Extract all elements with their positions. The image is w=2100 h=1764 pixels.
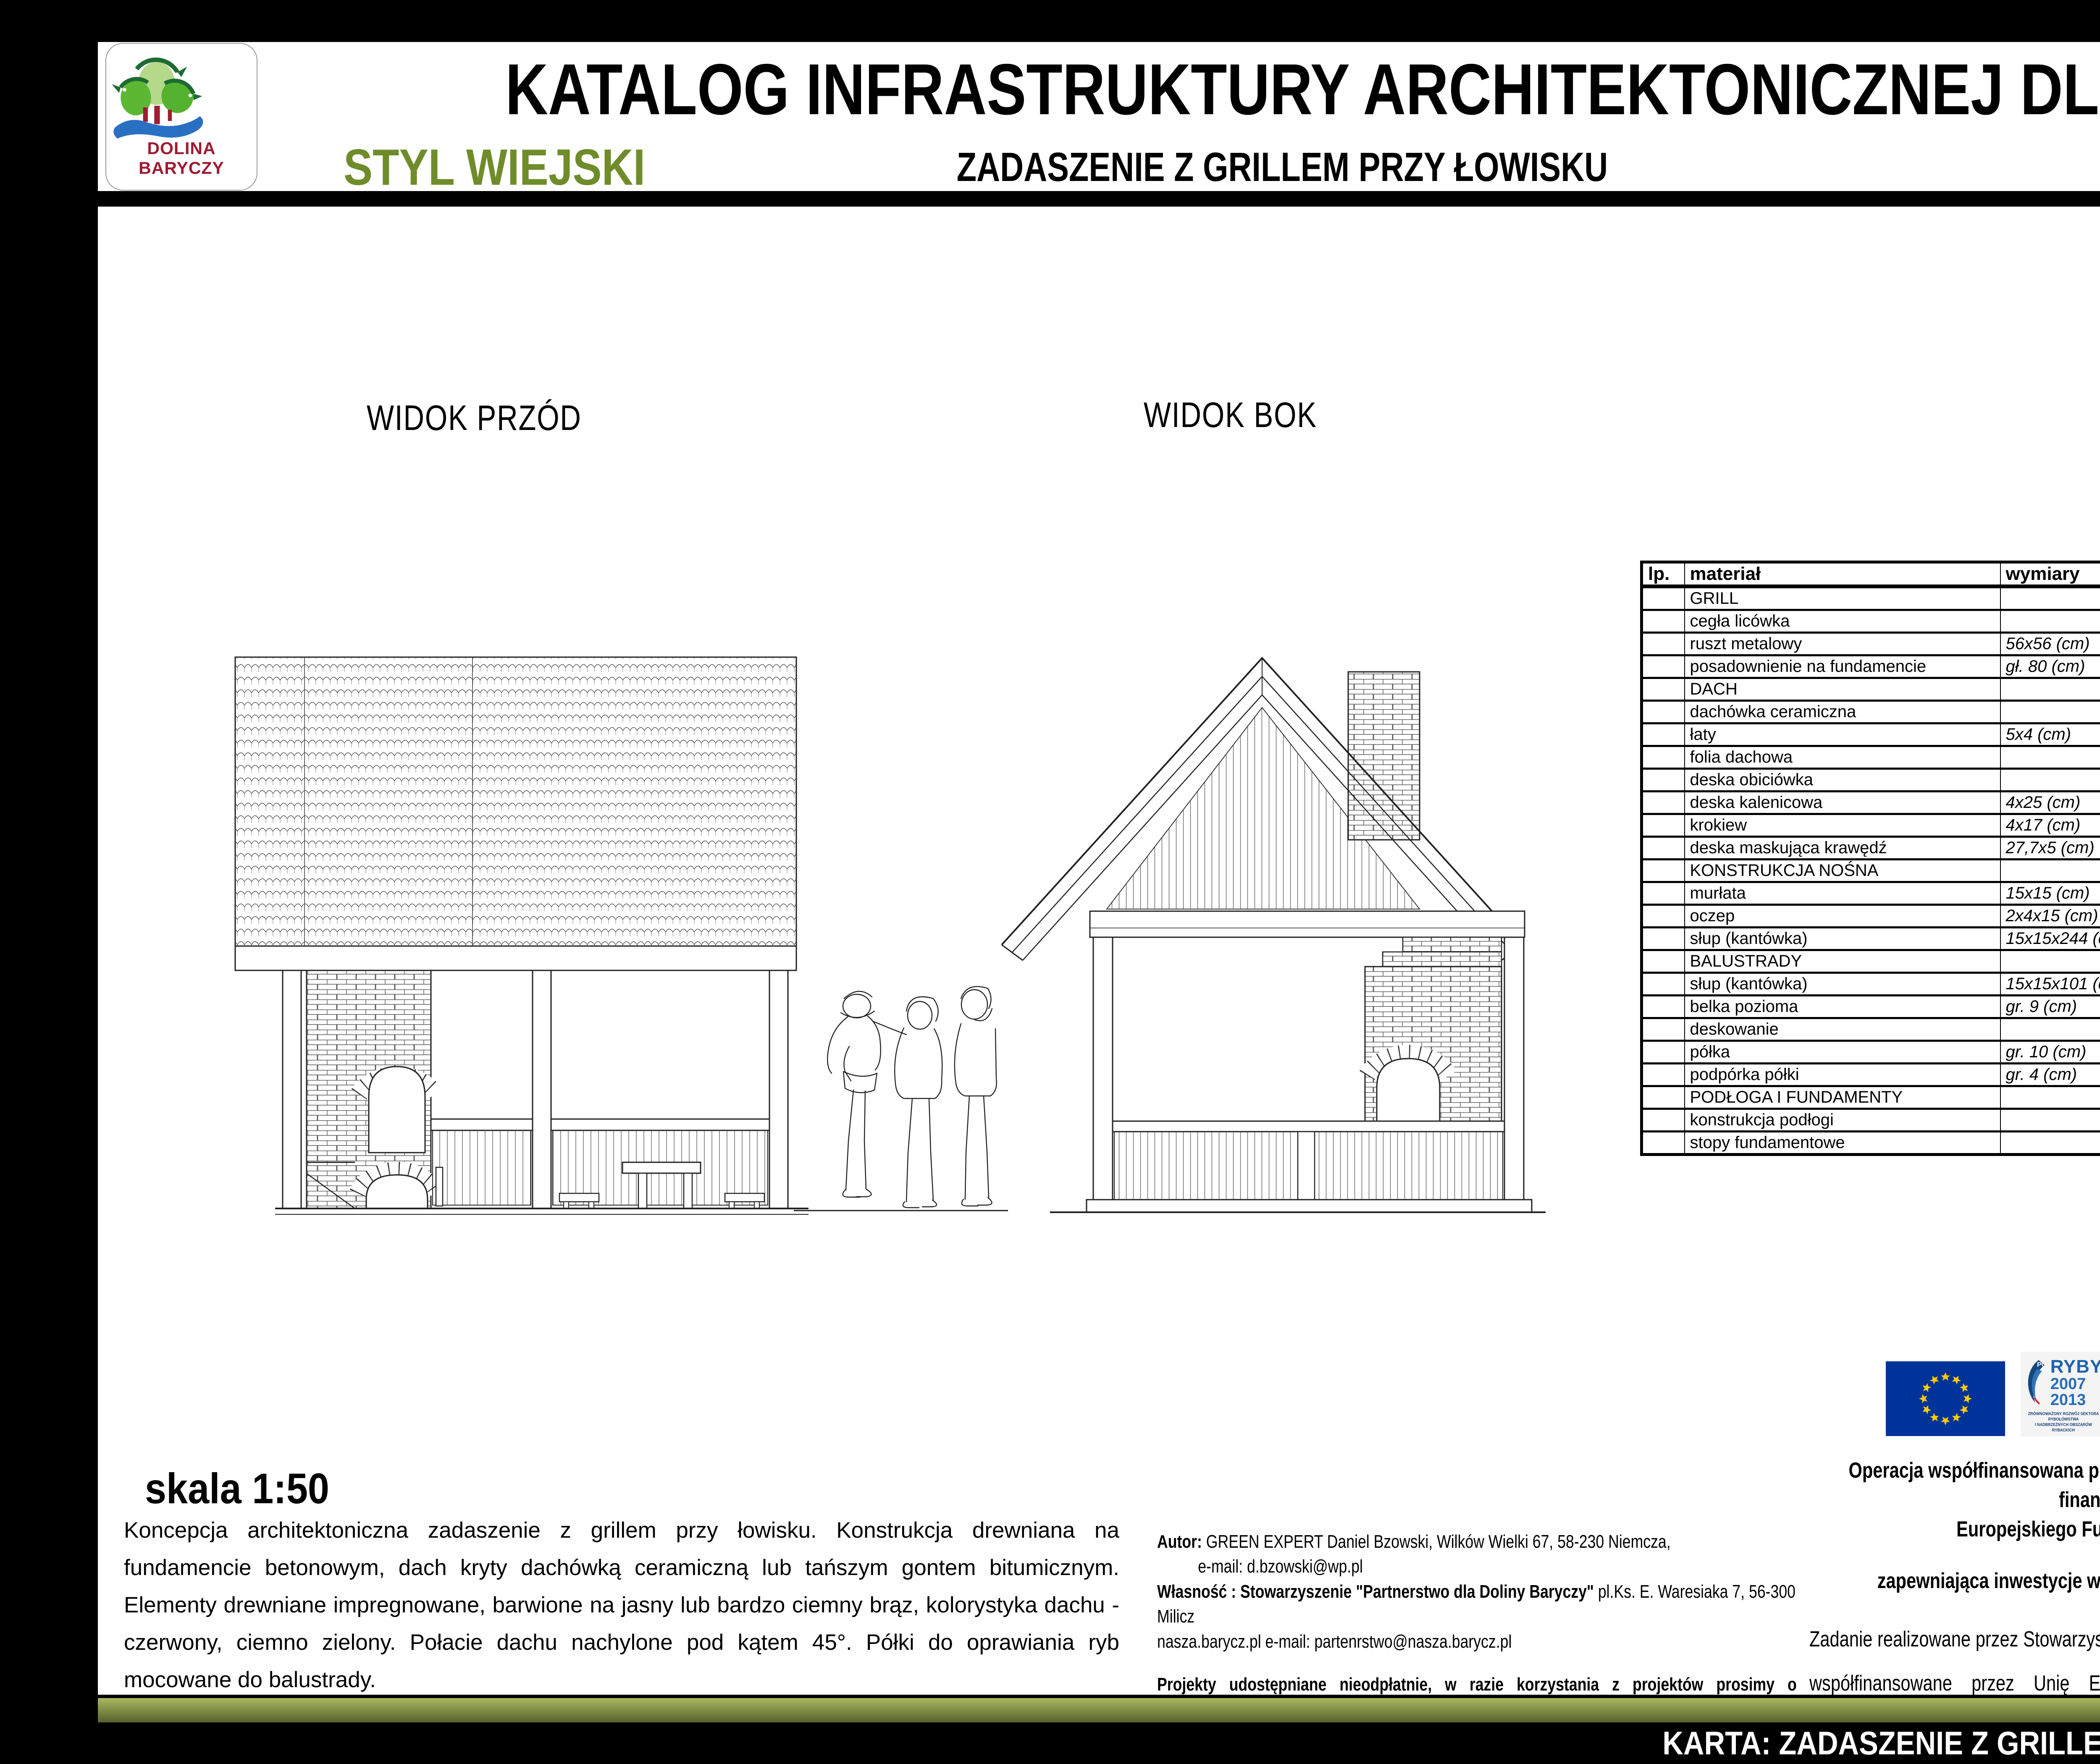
cell-material: deskowanie — [1685, 1018, 2000, 1041]
cell-material: BALUSTRADY — [1685, 950, 2000, 973]
cell-lp — [1642, 746, 1685, 769]
po-ryby-caption: ZRÓWNOWAŻONY ROZWÓJ SEKTORA RYBOŁÓWSTWA … — [2025, 1411, 2100, 1433]
funding-heading1: Operacja współfinansowana przez Unię Eur… — [1809, 1456, 2100, 1515]
scale-note: skala 1:50 — [145, 1464, 350, 1513]
table-row: podpórka półkigr. 4 (cm)7 szt.drewno imp… — [1642, 1064, 2100, 1086]
cell-material: posadownienie na fundamencie — [1685, 655, 2000, 678]
cell-lp — [1642, 610, 1685, 633]
materials-table-body: GRILLcegła licówka2,47 m³ruszt metalowy5… — [1642, 587, 2100, 1155]
table-row: półkagr. 10 (cm)2,91 mbdrewno impregnowa… — [1642, 1041, 2100, 1064]
table-row: folia dachowa27,7 m² — [1642, 746, 2100, 769]
cell-lp — [1642, 633, 1685, 655]
table-section-row: GRILL — [1642, 587, 2100, 610]
cell-material: dachówka ceramiczna — [1685, 701, 2000, 723]
table-section-row: DACH — [1642, 678, 2100, 701]
people-sketch — [794, 966, 1008, 1218]
table-header-cell: wymiary — [2000, 562, 2100, 587]
side-elevation-drawing — [987, 649, 1546, 1218]
table-row: słup (kantówka)15x15x244 (cm)5 szt.drewn… — [1642, 928, 2100, 950]
cell-dims: 4x17 (cm) — [2000, 814, 2100, 837]
cell-dims: 4x25 (cm) — [2000, 792, 2100, 814]
table-row: krokiew4x17 (cm)18 szt.drewno impregnowa… — [1642, 814, 2100, 837]
front-view-label: WIDOK PRZÓD — [367, 398, 629, 438]
cell-material: belka pozioma — [1685, 996, 2000, 1018]
cell-dims — [2000, 701, 2100, 723]
style-label: STYL WIEJSKI — [344, 138, 698, 197]
cell-lp — [1642, 996, 1685, 1018]
cell-dims: 5x4 (cm) — [2000, 723, 2100, 746]
front-elevation-drawing — [202, 647, 811, 1218]
cell-dims: gr. 4 (cm) — [2000, 1064, 2100, 1086]
cell-material: PODŁOGA I FUNDAMENTY — [1685, 1086, 2000, 1109]
page-subtitle: ZADASZENIE Z GRILLEM PRZY ŁOWISKU — [652, 144, 1912, 191]
table-row: belka poziomagr. 9 (cm)13,32 mbdrewno im… — [1642, 996, 2100, 1018]
cell-lp — [1642, 928, 1685, 950]
table-section-row: KONSTRUKCJA NOŚNA — [1642, 860, 2100, 882]
table-row: konstrukcja podłogi11,31 m² — [1642, 1109, 2100, 1132]
olive-divider-bar — [98, 1696, 2100, 1722]
footer-card-label: KARTA: ZADASZENIE Z GRILLEM PRZY ŁOWISKU… — [1562, 1724, 2100, 1762]
cell-dims: 2x4x15 (cm) — [2000, 905, 2100, 928]
cell-lp — [1642, 701, 1685, 723]
cell-lp — [1642, 950, 1685, 973]
materials-table: lp.materiałwymiaryilośćuwagi GRILLcegła … — [1640, 561, 2100, 1156]
cell-dims — [2000, 1109, 2100, 1132]
catalog-card-page: DOLINA BARYCZY KATALOG INFRASTRUKTURY AR… — [0, 0, 2100, 1764]
cell-lp — [1642, 1086, 1685, 1109]
cell-material: deska obiciówka — [1685, 769, 2000, 792]
table-row: deska kalenicowa4x25 (cm)1 szt.drewno im… — [1642, 792, 2100, 814]
cell-material: oczep — [1685, 905, 2000, 928]
po-ryby-fish-icon: PO — [2024, 1358, 2050, 1408]
cell-dims — [2000, 950, 2100, 973]
logo-caption: DOLINA BARYCZY — [106, 139, 257, 178]
cell-material: deska kalenicowa — [1685, 792, 2000, 814]
table-row: posadownienie na fundamenciegł. 80 (cm)1… — [1642, 655, 2100, 678]
description-line3: - zgłoszenie w urzędzie — [124, 1736, 1119, 1764]
cell-lp — [1642, 837, 1685, 860]
description-paragraph: Koncepcja architektoniczna zadaszenie z … — [124, 1512, 1119, 1698]
cell-material: łaty — [1685, 723, 2000, 746]
table-row: cegła licówka2,47 m³ — [1642, 610, 2100, 633]
author-line1: Autor: GREEN EXPERT Daniel Bzowski, Wilk… — [1157, 1529, 1797, 1554]
cell-dims: gr. 10 (cm) — [2000, 1041, 2100, 1064]
cell-material: ruszt metalowy — [1685, 633, 2000, 655]
cell-material: deska maskująca krawędź — [1685, 837, 2000, 860]
dolina-baryczy-logo: DOLINA BARYCZY — [105, 43, 257, 191]
cell-dims — [2000, 678, 2100, 701]
cell-lp — [1642, 769, 1685, 792]
cell-lp — [1642, 860, 1685, 882]
cell-dims — [2000, 1132, 2100, 1155]
cell-lp — [1642, 1064, 1685, 1086]
table-row: murłata15x15 (cm)17 mbdrewno impregnowan… — [1642, 882, 2100, 905]
tree-fish-wave-icon — [106, 55, 207, 139]
cell-material: cegła licówka — [1685, 610, 2000, 633]
cell-material: GRILL — [1685, 587, 2000, 610]
cell-dims — [2000, 860, 2100, 882]
funding-heading2: Europejskiego Funduszu Rybackiego — [1809, 1515, 2100, 1544]
table-row: stopy fundamentowe5 szt. — [1642, 1132, 2100, 1155]
cell-material: półka — [1685, 1041, 2000, 1064]
cell-dims: 27,7x5 (cm) — [2000, 837, 2100, 860]
cell-dims — [2000, 746, 2100, 769]
description-block: Koncepcja architektoniczna zadaszenie z … — [124, 1512, 1119, 1764]
header: DOLINA BARYCZY KATALOG INFRASTRUKTURY AR… — [98, 42, 2100, 191]
owner-line: Własność : Stowarzyszenie "Partnerstwo d… — [1157, 1579, 1797, 1629]
table-row: deska obiciówka12,47 m² — [1642, 769, 2100, 792]
table-row: dachówka ceramiczna26,39 m² — [1642, 701, 2100, 723]
cell-lp — [1642, 1132, 1685, 1155]
table-row: deskowanie5,39 m²drewno impregnowane — [1642, 1018, 2100, 1041]
cell-dims: 15x15x101 (cm) — [2000, 973, 2100, 996]
cell-lp — [1642, 1109, 1685, 1132]
table-row: słup (kantówka)15x15x101 (cm)4 szt.drewn… — [1642, 973, 2100, 996]
cell-material: DACH — [1685, 678, 2000, 701]
cell-lp — [1642, 882, 1685, 905]
cell-material: murłata — [1685, 882, 2000, 905]
cell-dims: 15x15 (cm) — [2000, 882, 2100, 905]
po-ryby-year1: 2007 — [2050, 1376, 2100, 1392]
table-row: oczep2x4x15 (cm)17 mbdrewno impregnowane — [1642, 905, 2100, 928]
po-ryby-logo: PO RYBY 2007 2013 ZRÓWNOWAŻONY ROZWÓJ SE… — [2021, 1352, 2100, 1436]
cell-dims — [2000, 1086, 2100, 1109]
owner-contact: nasza.barycz.pl e-mail: partenrstwo@nasz… — [1157, 1629, 1797, 1654]
cell-material: KONSTRUKCJA NOŚNA — [1685, 860, 2000, 882]
cell-lp — [1642, 723, 1685, 746]
table-header-row: lp.materiałwymiaryilośćuwagi — [1642, 562, 2100, 587]
table-header-cell: lp. — [1642, 562, 1685, 587]
cell-dims: 15x15x244 (cm) — [2000, 928, 2100, 950]
cell-material: konstrukcja podłogi — [1685, 1109, 2000, 1132]
cell-dims — [2000, 1018, 2100, 1041]
cell-material: słup (kantówka) — [1685, 973, 2000, 996]
side-view-label: WIDOK BOK — [1144, 395, 1355, 435]
table-section-row: PODŁOGA I FUNDAMENTY — [1642, 1086, 2100, 1109]
table-header-cell: materiał — [1685, 562, 2000, 587]
cell-lp — [1642, 905, 1685, 928]
cell-material: stopy fundamentowe — [1685, 1132, 2000, 1155]
cell-lp — [1642, 792, 1685, 814]
cell-material: słup (kantówka) — [1685, 928, 2000, 950]
cell-lp — [1642, 1041, 1685, 1064]
cell-material: krokiew — [1685, 814, 2000, 837]
eu-flag-icon — [1886, 1361, 2005, 1436]
table-row: ruszt metalowy56x56 (cm)1 szt. — [1642, 633, 2100, 655]
cell-material: folia dachowa — [1685, 746, 2000, 769]
cell-dims — [2000, 587, 2100, 610]
author-email: e-mail: d.bzowski@wp.pl — [1157, 1554, 1797, 1579]
svg-text:PO: PO — [2037, 1361, 2047, 1368]
cell-dims: gł. 80 (cm) — [2000, 655, 2100, 678]
cell-lp — [1642, 973, 1685, 996]
po-ryby-title: RYBY — [2050, 1358, 2100, 1376]
po-ryby-year2: 2013 — [2050, 1392, 2100, 1408]
table-section-row: BALUSTRADY — [1642, 950, 2100, 973]
page-title: KATALOG INFRASTRUKTURY ARCHITEKTONICZNEJ… — [316, 48, 2100, 131]
cell-lp — [1642, 587, 1685, 610]
cell-lp — [1642, 678, 1685, 701]
table-row: łaty5x4 (cm)128 mbdrewno impregnowane — [1642, 723, 2100, 746]
funding-heading3: zapewniająca inwestycje w zrównoważone r… — [1809, 1566, 2100, 1596]
table-row: deska maskująca krawędź27,7x5 (cm)9,1 mb… — [1642, 837, 2100, 860]
funding-logos-row: PO RYBY 2007 2013 ZRÓWNOWAŻONY ROZWÓJ SE… — [1886, 1342, 2100, 1449]
cell-dims: 56x56 (cm) — [2000, 633, 2100, 655]
cell-material: podpórka półki — [1685, 1064, 2000, 1086]
cell-lp — [1642, 814, 1685, 837]
cell-dims — [2000, 769, 2100, 792]
cell-lp — [1642, 1018, 1685, 1041]
main-content: WIDOK PRZÓD WIDOK BOK — [98, 207, 2100, 1695]
cell-dims — [2000, 610, 2100, 633]
cell-dims: gr. 9 (cm) — [2000, 996, 2100, 1018]
cell-lp — [1642, 655, 1685, 678]
